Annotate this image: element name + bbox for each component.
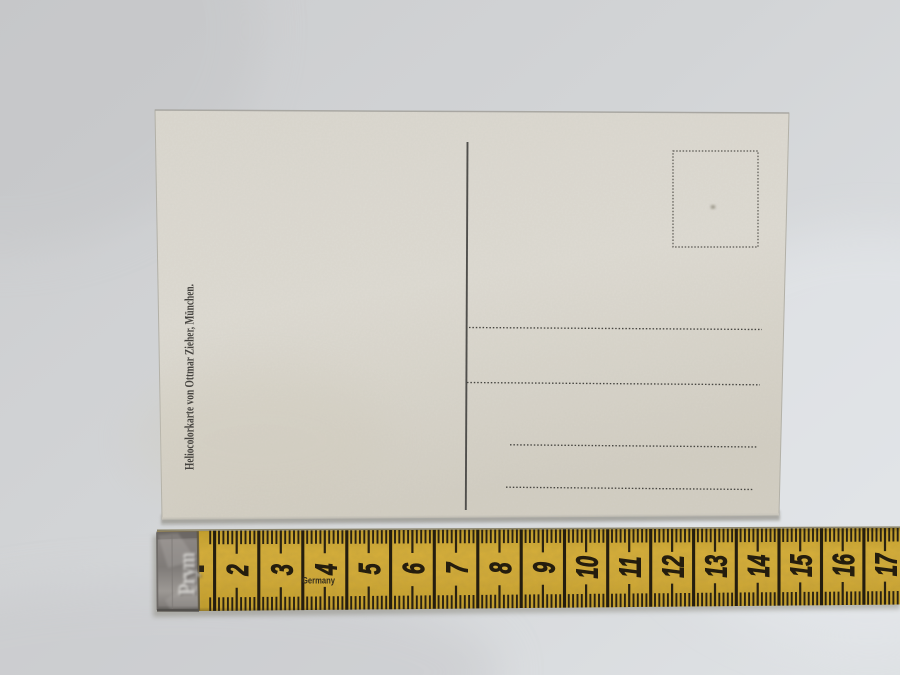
svg-text:10: 10 [572, 556, 605, 579]
svg-text:14: 14 [743, 555, 776, 577]
svg-text:17: 17 [871, 553, 900, 577]
svg-text:8: 8 [485, 562, 518, 574]
svg-text:Prym: Prym [174, 552, 201, 595]
svg-text:3: 3 [266, 564, 299, 576]
svg-text:9: 9 [528, 562, 561, 574]
svg-text:Germany: Germany [302, 576, 335, 586]
svg-text:4: 4 [310, 564, 343, 576]
svg-text:Heliocolorkarte von Ottmar Zie: Heliocolorkarte von Ottmar Zieher, Münch… [182, 284, 197, 470]
svg-text:11: 11 [615, 557, 648, 578]
svg-text:12: 12 [658, 555, 691, 578]
svg-text:6: 6 [398, 563, 431, 575]
svg-text:2: 2 [222, 564, 255, 576]
svg-text:7: 7 [442, 561, 475, 573]
svg-text:16: 16 [828, 554, 861, 577]
svg-text:13: 13 [701, 555, 734, 578]
svg-text:15: 15 [786, 554, 819, 577]
svg-text:5: 5 [354, 563, 387, 575]
